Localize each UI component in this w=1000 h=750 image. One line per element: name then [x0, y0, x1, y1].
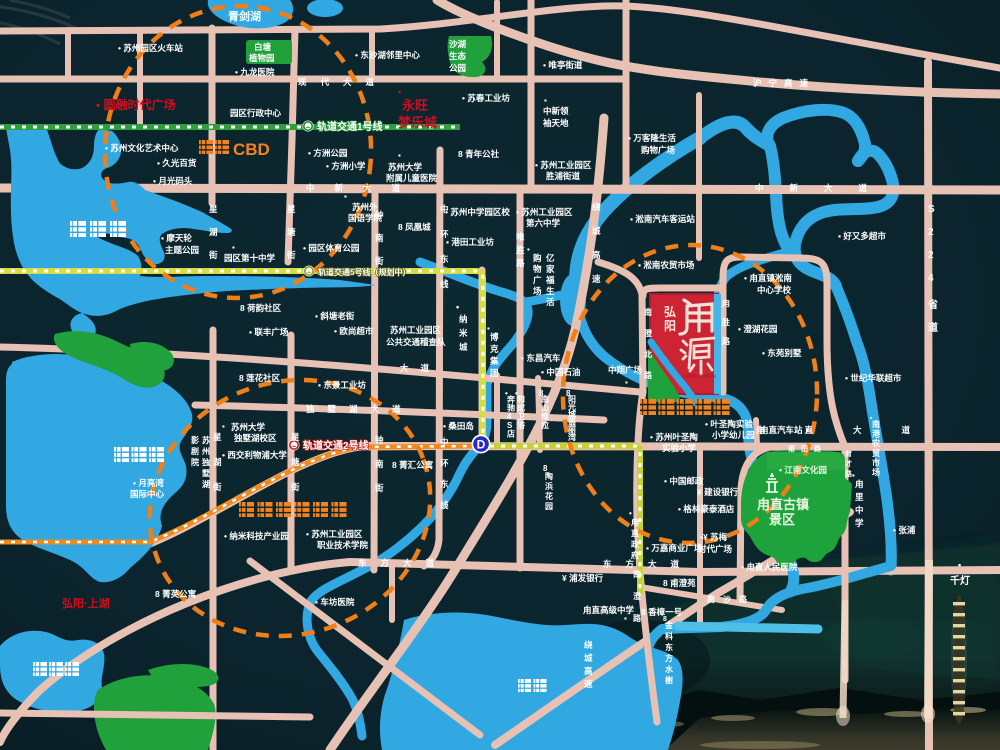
svg-text:城: 城: [592, 226, 601, 236]
svg-text:中新大道: 中新大道: [755, 183, 893, 193]
svg-text:城: 城: [459, 342, 468, 352]
svg-text:生态: 生态: [449, 51, 467, 61]
svg-text:城: 城: [584, 653, 593, 663]
svg-text:时代广场: 时代广场: [698, 544, 733, 554]
svg-text:路: 路: [722, 336, 731, 346]
svg-text:8 凤凰城: 8 凤凰城: [398, 222, 431, 232]
svg-text:东: 东: [440, 254, 449, 264]
svg-text:澄: 澄: [644, 328, 653, 338]
svg-text:▪: ▪: [625, 378, 628, 387]
svg-text:8 荷韵社区: 8 荷韵社区: [240, 303, 282, 313]
svg-text:贸: 贸: [872, 448, 880, 458]
svg-text:• 桑田岛: • 桑田岛: [443, 421, 474, 431]
svg-text:福: 福: [545, 275, 555, 285]
svg-text:农: 农: [871, 438, 880, 448]
svg-text:场: 场: [872, 467, 880, 477]
svg-text:• 东沙湖邻里中心: • 东沙湖邻里中心: [355, 50, 420, 60]
svg-text:8 甫澄苑: 8 甫澄苑: [663, 578, 696, 588]
svg-text:▪: ▪: [544, 96, 547, 105]
svg-text:青剑湖: 青剑湖: [228, 9, 261, 23]
svg-text:甪: 甪: [631, 517, 639, 527]
svg-text:路: 路: [845, 469, 853, 478]
svg-text:市: 市: [872, 457, 880, 467]
svg-text:克: 克: [490, 344, 499, 354]
svg-text:轨道交通5号线（规划中）: 轨道交通5号线（规划中）: [318, 267, 410, 277]
svg-text:▪ 淞南农贸市场: ▪ 淞南农贸市场: [638, 260, 695, 270]
svg-text:钟: 钟: [375, 435, 384, 445]
svg-text:▪¥ 苏梅: ▪¥ 苏梅: [700, 532, 728, 542]
svg-text:• 江南文化园: • 江南文化园: [779, 465, 827, 475]
svg-text:•: •: [958, 560, 961, 570]
svg-text:• 苏州叶圣陶: • 苏州叶圣陶: [650, 432, 698, 442]
svg-text:2: 2: [928, 250, 934, 261]
svg-text:8 香樟一号: 8 香樟一号: [641, 607, 683, 617]
svg-text:▪ 好又多超市: ▪ 好又多超市: [838, 231, 886, 241]
svg-text:澄: 澄: [633, 591, 642, 601]
svg-text:▪ 车坊医院: ▪ 车坊医院: [315, 597, 355, 607]
svg-text:• 苏州中学园区校: • 苏州中学园区校: [445, 207, 510, 217]
svg-text:•: •: [505, 389, 508, 398]
svg-text:园区第十中学: 园区第十中学: [224, 253, 276, 263]
svg-text:高: 高: [584, 666, 593, 676]
svg-text:环: 环: [440, 458, 449, 468]
svg-text:甪: 甪: [722, 298, 730, 308]
svg-text:• 世纪华联超市: • 世纪华联超市: [845, 373, 902, 383]
svg-text:院: 院: [191, 457, 199, 467]
svg-text:• 中国石油: • 中国石油: [541, 367, 580, 377]
svg-text:学: 学: [855, 518, 864, 528]
svg-text:绕: 绕: [584, 640, 593, 650]
svg-text:路: 路: [516, 258, 525, 268]
svg-text:甪直汽车站: 甪直汽车站: [760, 425, 803, 435]
svg-text:苏州大学: 苏州大学: [231, 422, 266, 432]
svg-text:绕: 绕: [592, 202, 601, 212]
svg-text:里: 里: [855, 492, 864, 502]
svg-text:街: 街: [290, 482, 300, 492]
svg-text:•: •: [629, 509, 632, 518]
svg-text:▪ 联丰广场: ▪ 联丰广场: [249, 327, 289, 337]
svg-text:阳: 阳: [664, 318, 676, 333]
svg-text:•: •: [515, 389, 518, 398]
svg-text:• 东苑别墅: • 东苑别墅: [762, 348, 802, 358]
svg-text:▪: ▪: [398, 87, 401, 97]
svg-text:梦乐城: 梦乐城: [398, 115, 437, 130]
svg-text:港: 港: [872, 429, 881, 439]
svg-text:弘: 弘: [664, 305, 676, 319]
svg-text:科: 科: [665, 631, 673, 641]
svg-text:方: 方: [665, 653, 673, 663]
svg-text:南: 南: [644, 307, 652, 317]
svg-text:店: 店: [507, 428, 515, 438]
svg-text:国际中心: 国际中心: [130, 489, 165, 499]
svg-text:现代大道: 现代大道: [298, 77, 388, 87]
svg-text:活: 活: [546, 297, 555, 307]
svg-text:线: 线: [440, 500, 449, 510]
svg-text:街: 街: [212, 482, 222, 492]
svg-text:墅: 墅: [202, 468, 210, 478]
svg-text:▪: ▪: [344, 192, 347, 201]
svg-text:路: 路: [644, 370, 653, 380]
svg-text:▪: ▪: [624, 614, 627, 623]
svg-text:袖天地: 袖天地: [542, 118, 569, 128]
svg-text:道: 道: [928, 321, 938, 334]
svg-text:独: 独: [201, 457, 210, 467]
svg-text:唯: 唯: [516, 232, 525, 242]
svg-text:花: 花: [545, 491, 553, 501]
svg-text:▪ 万嘉商业广场: ▪ 万嘉商业广场: [646, 543, 703, 553]
svg-text:府: 府: [631, 550, 639, 560]
svg-text:永旺: 永旺: [401, 98, 428, 113]
svg-text:▪ 万客隆生活: ▪ 万客隆生活: [628, 133, 676, 143]
svg-text:购: 购: [532, 253, 542, 263]
svg-text:▪: ▪: [527, 245, 530, 254]
svg-text:南: 南: [375, 233, 384, 243]
svg-text:塘: 塘: [287, 227, 296, 237]
svg-text:第六中学: 第六中学: [526, 218, 561, 228]
svg-text:S: S: [928, 204, 935, 215]
svg-text:▪ 斜塘老街: ▪ 斜塘老街: [315, 311, 355, 321]
svg-text:湖: 湖: [209, 227, 218, 237]
svg-text:▪ 淞南汽车客运站: ▪ 淞南汽车客运站: [630, 214, 695, 224]
svg-text:直: 直: [631, 528, 639, 538]
svg-text:集: 集: [489, 356, 499, 366]
svg-text:甫田路: 甫田路: [788, 444, 827, 453]
svg-text:高: 高: [592, 250, 601, 260]
svg-text:中心学校: 中心学校: [757, 285, 792, 295]
svg-text:水: 水: [664, 664, 674, 674]
svg-text:• 苏州工业园区: • 苏州工业园区: [306, 529, 363, 539]
svg-text:独墅湖大道: 独墅湖大道: [305, 404, 414, 414]
svg-text:浜: 浜: [545, 481, 553, 491]
svg-text:街: 街: [208, 250, 218, 260]
svg-text:千灯: 千灯: [950, 574, 970, 587]
svg-text:和: 和: [517, 394, 525, 404]
svg-text:▪ 久光百货: ▪ 久光百货: [157, 158, 197, 168]
svg-text:• 格林豪泰酒店: • 格林豪泰酒店: [678, 504, 735, 514]
svg-text:8: 8: [539, 389, 544, 398]
svg-text:中: 中: [440, 437, 449, 447]
svg-text:胜: 胜: [721, 317, 730, 327]
svg-text:南: 南: [872, 419, 880, 429]
svg-text:• 月光码头: • 月光码头: [153, 176, 193, 186]
svg-text:• 西交利物浦大学: • 西交利物浦大学: [222, 450, 287, 460]
svg-text:• 苏州工业园区: • 苏州工业园区: [535, 160, 592, 170]
svg-text:小学幼儿园: 小学幼儿园: [711, 430, 755, 440]
svg-text:苏: 苏: [202, 435, 210, 445]
svg-text:胜: 胜: [515, 245, 525, 255]
svg-text:场: 场: [533, 286, 542, 296]
svg-text:生: 生: [546, 286, 555, 296]
svg-text:甪: 甪: [855, 479, 864, 489]
svg-text:职业技术学院: 职业技术学院: [317, 540, 369, 550]
svg-text:附属儿童医院: 附属儿童医院: [386, 173, 438, 183]
svg-text:胜浦街道: 胜浦街道: [545, 171, 581, 181]
svg-text:园区行政中心: 园区行政中心: [230, 108, 282, 118]
svg-text:塘: 塘: [291, 457, 300, 467]
svg-text:▪: ▪: [806, 425, 809, 435]
svg-text:中: 中: [855, 505, 864, 515]
svg-text:剧: 剧: [190, 446, 199, 456]
svg-text:湖: 湖: [202, 479, 210, 489]
svg-text:景区: 景区: [769, 512, 795, 527]
svg-text:• 苏州工业园区: • 苏州工业园区: [516, 207, 573, 217]
svg-text:• 叶圣陶实验: • 叶圣陶实验: [705, 419, 753, 429]
svg-text:才: 才: [845, 459, 852, 468]
svg-text:中: 中: [440, 204, 449, 214]
svg-text:省: 省: [927, 298, 938, 311]
svg-text:山: 山: [541, 403, 549, 413]
svg-text:东: 东: [665, 642, 673, 652]
svg-text:家: 家: [546, 264, 555, 274]
svg-text:▪: ▪: [852, 471, 855, 480]
svg-text:湖: 湖: [213, 457, 222, 467]
svg-text:星: 星: [213, 432, 222, 442]
svg-text:轨道交通2号线: 轨道交通2号线: [303, 439, 369, 452]
svg-text:苏州工业园区: 苏州工业园区: [390, 325, 442, 335]
svg-text:驰: 驰: [507, 403, 515, 413]
svg-text:白塘: 白塘: [254, 42, 272, 52]
svg-text:政: 政: [631, 539, 639, 549]
svg-text:弘阳·上湖: 弘阳·上湖: [62, 596, 110, 610]
svg-text:• 纳米科技产业园: • 纳米科技产业园: [224, 531, 289, 541]
svg-text:CBD: CBD: [233, 140, 270, 159]
svg-text:环: 环: [440, 229, 449, 239]
svg-text:• 唯亭街道: • 唯亭街道: [543, 60, 583, 70]
svg-text:成: 成: [517, 403, 525, 413]
svg-text:▪ 港田工业坊: ▪ 港田工业坊: [446, 237, 494, 247]
svg-text:州: 州: [201, 447, 210, 456]
svg-text:8 菁英公寓: 8 菁英公寓: [155, 589, 197, 599]
svg-text:• 中国邮政: • 中国邮政: [664, 476, 704, 486]
svg-text:LUZHI ORIGIN: LUZHI ORIGIN: [682, 374, 716, 380]
svg-text:• 东昌汽车: • 东昌汽车: [521, 353, 561, 363]
svg-text:实验小学: 实验小学: [662, 443, 697, 453]
svg-text:大道: 大道: [400, 363, 441, 373]
svg-text:拉: 拉: [541, 420, 549, 430]
svg-text:速: 速: [584, 679, 593, 689]
svg-text:街: 街: [374, 483, 384, 493]
svg-text:• 张浦: • 张浦: [893, 525, 916, 535]
svg-text:湾: 湾: [568, 432, 576, 442]
svg-text:购物广场: 购物广场: [640, 145, 676, 155]
svg-text:• 方洲公园: • 方洲公园: [308, 148, 347, 158]
svg-text:▪: ▪: [398, 151, 401, 160]
svg-text:• 苏春工业坊: • 苏春工业坊: [462, 93, 510, 103]
svg-text:▪: ▪: [487, 324, 490, 333]
svg-text:街: 街: [286, 250, 296, 260]
svg-text:育: 育: [845, 449, 852, 458]
svg-text:影: 影: [191, 435, 199, 445]
svg-text:东: 东: [440, 479, 449, 489]
svg-text:钟: 钟: [375, 210, 384, 220]
svg-text:沙湖: 沙湖: [449, 39, 467, 49]
svg-text:星: 星: [209, 204, 218, 214]
svg-text:▪ 摩天轮: ▪ 摩天轮: [161, 233, 192, 243]
svg-text:东方大道: 东方大道: [603, 559, 693, 569]
svg-text:•: •: [456, 302, 459, 312]
svg-text:星: 星: [291, 432, 300, 442]
svg-text:D: D: [477, 438, 486, 452]
svg-text:8: 8: [566, 389, 571, 398]
svg-text:中翔广场: 中翔广场: [608, 365, 643, 375]
svg-text:¥ 浦发银行: ¥ 浦发银行: [562, 573, 604, 583]
svg-text:南: 南: [375, 459, 384, 469]
svg-text:物: 物: [533, 264, 542, 274]
svg-text:北: 北: [644, 349, 652, 359]
svg-text:东方大道: 东方大道: [358, 558, 448, 568]
svg-text:8: 8: [663, 616, 667, 623]
svg-text:• 苏州园区火车站: • 苏州园区火车站: [118, 43, 183, 53]
svg-text:• 园区体育公园: • 园区体育公园: [303, 243, 359, 253]
svg-text:8 菁汇公寓: 8 菁汇公寓: [392, 460, 434, 470]
svg-text:浴: 浴: [517, 420, 526, 430]
svg-text:▪ 东景工业坊: ▪ 东景工业坊: [318, 380, 366, 390]
svg-text:8 莲花社区: 8 莲花社区: [239, 373, 281, 383]
svg-text:▪ 甪直人民医院: ▪ 甪直人民医院: [741, 562, 798, 572]
svg-text:轨道交通1号线: 轨道交通1号线: [317, 120, 383, 133]
svg-text:米: 米: [459, 328, 468, 338]
svg-text:团: 团: [490, 368, 499, 378]
svg-text:• 方洲小学: • 方洲小学: [326, 161, 366, 171]
svg-text:2: 2: [928, 227, 934, 238]
svg-text:8: 8: [543, 464, 548, 473]
svg-text:¥ 建设银行: ¥ 建设银行: [697, 487, 739, 497]
svg-text:星: 星: [287, 204, 296, 214]
svg-text:• 澄湖花园: • 澄湖花园: [738, 324, 777, 334]
svg-text:• 欧尚超市: • 欧尚超市: [334, 326, 374, 336]
svg-text:▪: ▪: [222, 422, 225, 431]
svg-text:苏州大学: 苏州大学: [388, 162, 423, 172]
svg-text:• 苏州文化艺术中心: • 苏州文化艺术中心: [105, 143, 179, 153]
svg-text:• 甪直镇淞南: • 甪直镇淞南: [744, 273, 792, 283]
svg-text:▪ 圆融时代广场: ▪ 圆融时代广场: [96, 97, 176, 112]
svg-text:维: 维: [541, 411, 549, 421]
svg-text:速: 速: [592, 274, 601, 284]
svg-text:甪直古镇: 甪直古镇: [757, 497, 809, 512]
svg-text:▪: ▪: [232, 243, 235, 252]
svg-text:中新大道: 中新大道: [306, 183, 420, 193]
svg-text:南: 南: [633, 569, 641, 579]
svg-text:纳: 纳: [459, 314, 468, 324]
svg-text:街: 街: [374, 256, 384, 266]
svg-text:▪ 月亮湾: ▪ 月亮湾: [133, 478, 164, 488]
svg-text:植物园: 植物园: [248, 53, 275, 63]
svg-text:线: 线: [440, 279, 449, 289]
svg-text:园: 园: [545, 502, 553, 511]
svg-text:南沙路: 南沙路: [707, 594, 755, 604]
svg-text:公园: 公园: [449, 63, 466, 73]
svg-text:主题公园: 主题公园: [165, 245, 199, 255]
svg-text:广: 广: [533, 275, 542, 285]
svg-text:• 九龙医院: • 九龙医院: [235, 67, 275, 77]
svg-text:4: 4: [928, 273, 934, 284]
svg-text:博: 博: [490, 332, 499, 342]
svg-text:沪宁高速: 沪宁高速: [753, 78, 815, 88]
svg-text:独墅湖校区: 独墅湖校区: [233, 433, 277, 443]
svg-text:8 青年公社: 8 青年公社: [458, 149, 500, 159]
svg-text:亿: 亿: [546, 253, 555, 263]
svg-text:榭: 榭: [664, 675, 673, 685]
svg-text:中新领: 中新领: [543, 106, 569, 116]
svg-text:公共交通稽查队: 公共交通稽查队: [386, 337, 446, 347]
